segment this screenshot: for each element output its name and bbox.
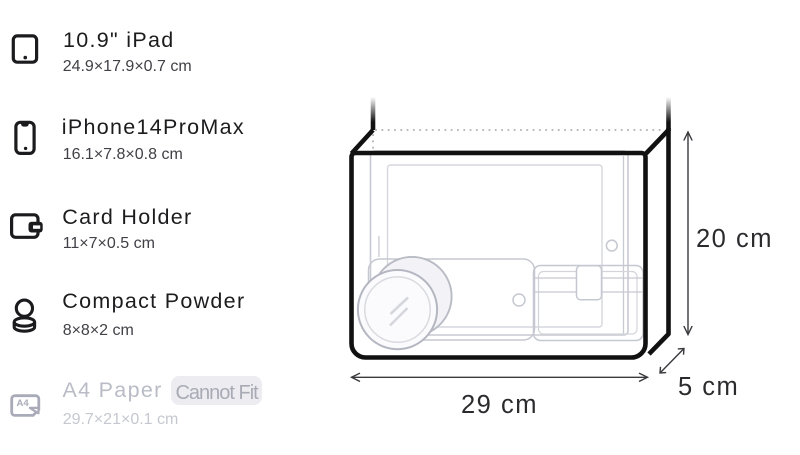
svg-text:A4: A4 bbox=[17, 398, 30, 409]
